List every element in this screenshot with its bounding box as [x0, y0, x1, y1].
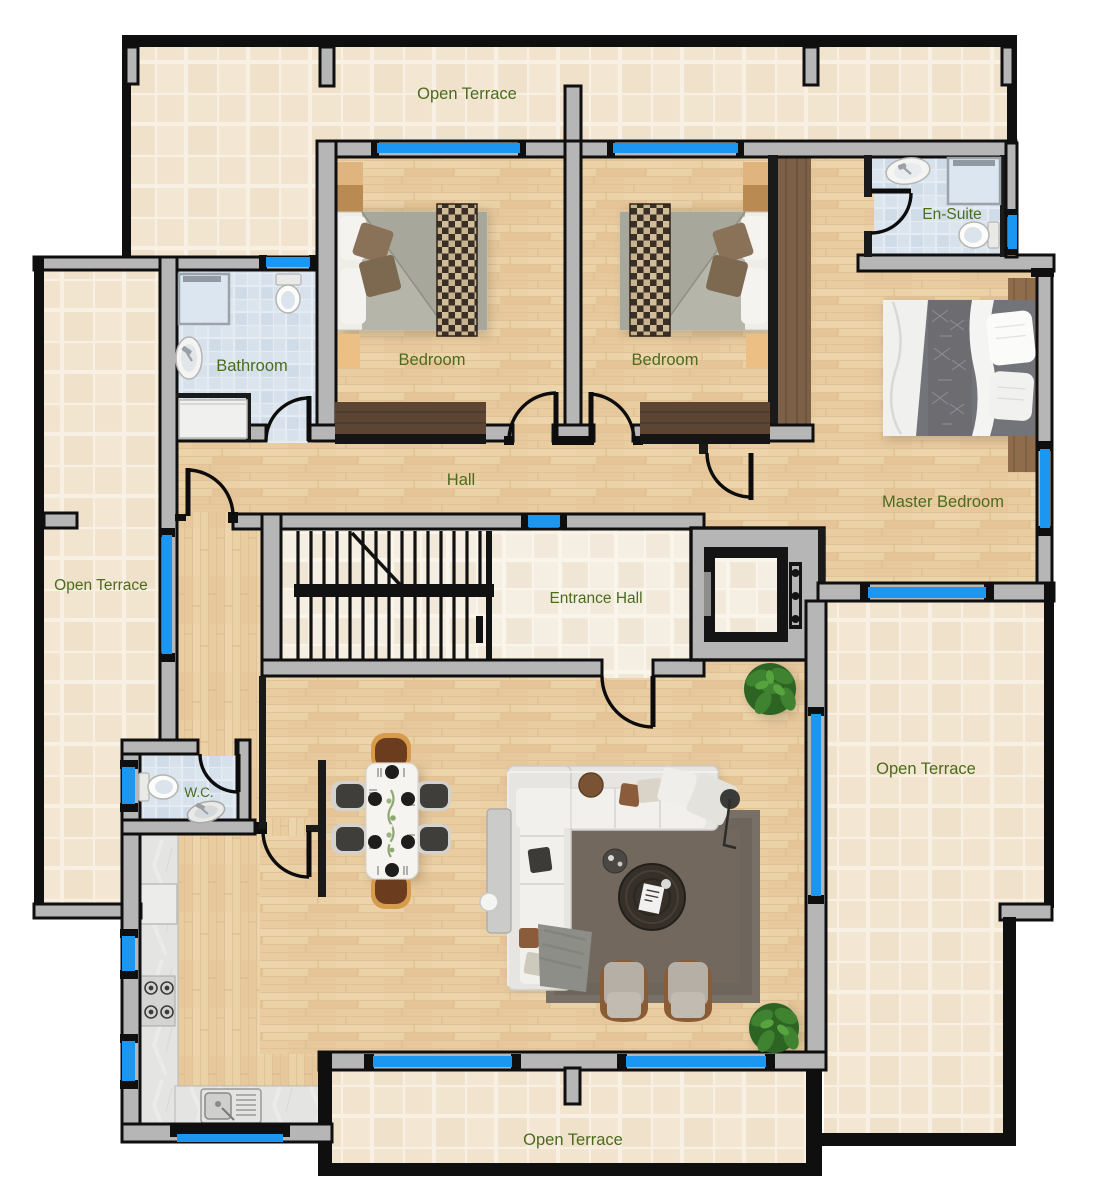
svg-text:Open Terrace: Open Terrace: [417, 85, 517, 103]
svg-text:Bedroom: Bedroom: [399, 351, 466, 369]
svg-text:En-Suite: En-Suite: [922, 206, 981, 223]
svg-text:Bathroom: Bathroom: [216, 357, 288, 375]
svg-text:Open Terrace: Open Terrace: [54, 577, 148, 594]
svg-text:Entrance Hall: Entrance Hall: [549, 590, 642, 607]
svg-text:Master Bedroom: Master Bedroom: [882, 493, 1004, 511]
svg-text:Hall: Hall: [447, 471, 475, 489]
svg-text:Open Terrace: Open Terrace: [876, 760, 976, 778]
svg-text:Bedroom: Bedroom: [632, 351, 699, 369]
svg-text:W.C.: W.C.: [184, 785, 213, 800]
svg-text:Open Terrace: Open Terrace: [523, 1131, 623, 1149]
